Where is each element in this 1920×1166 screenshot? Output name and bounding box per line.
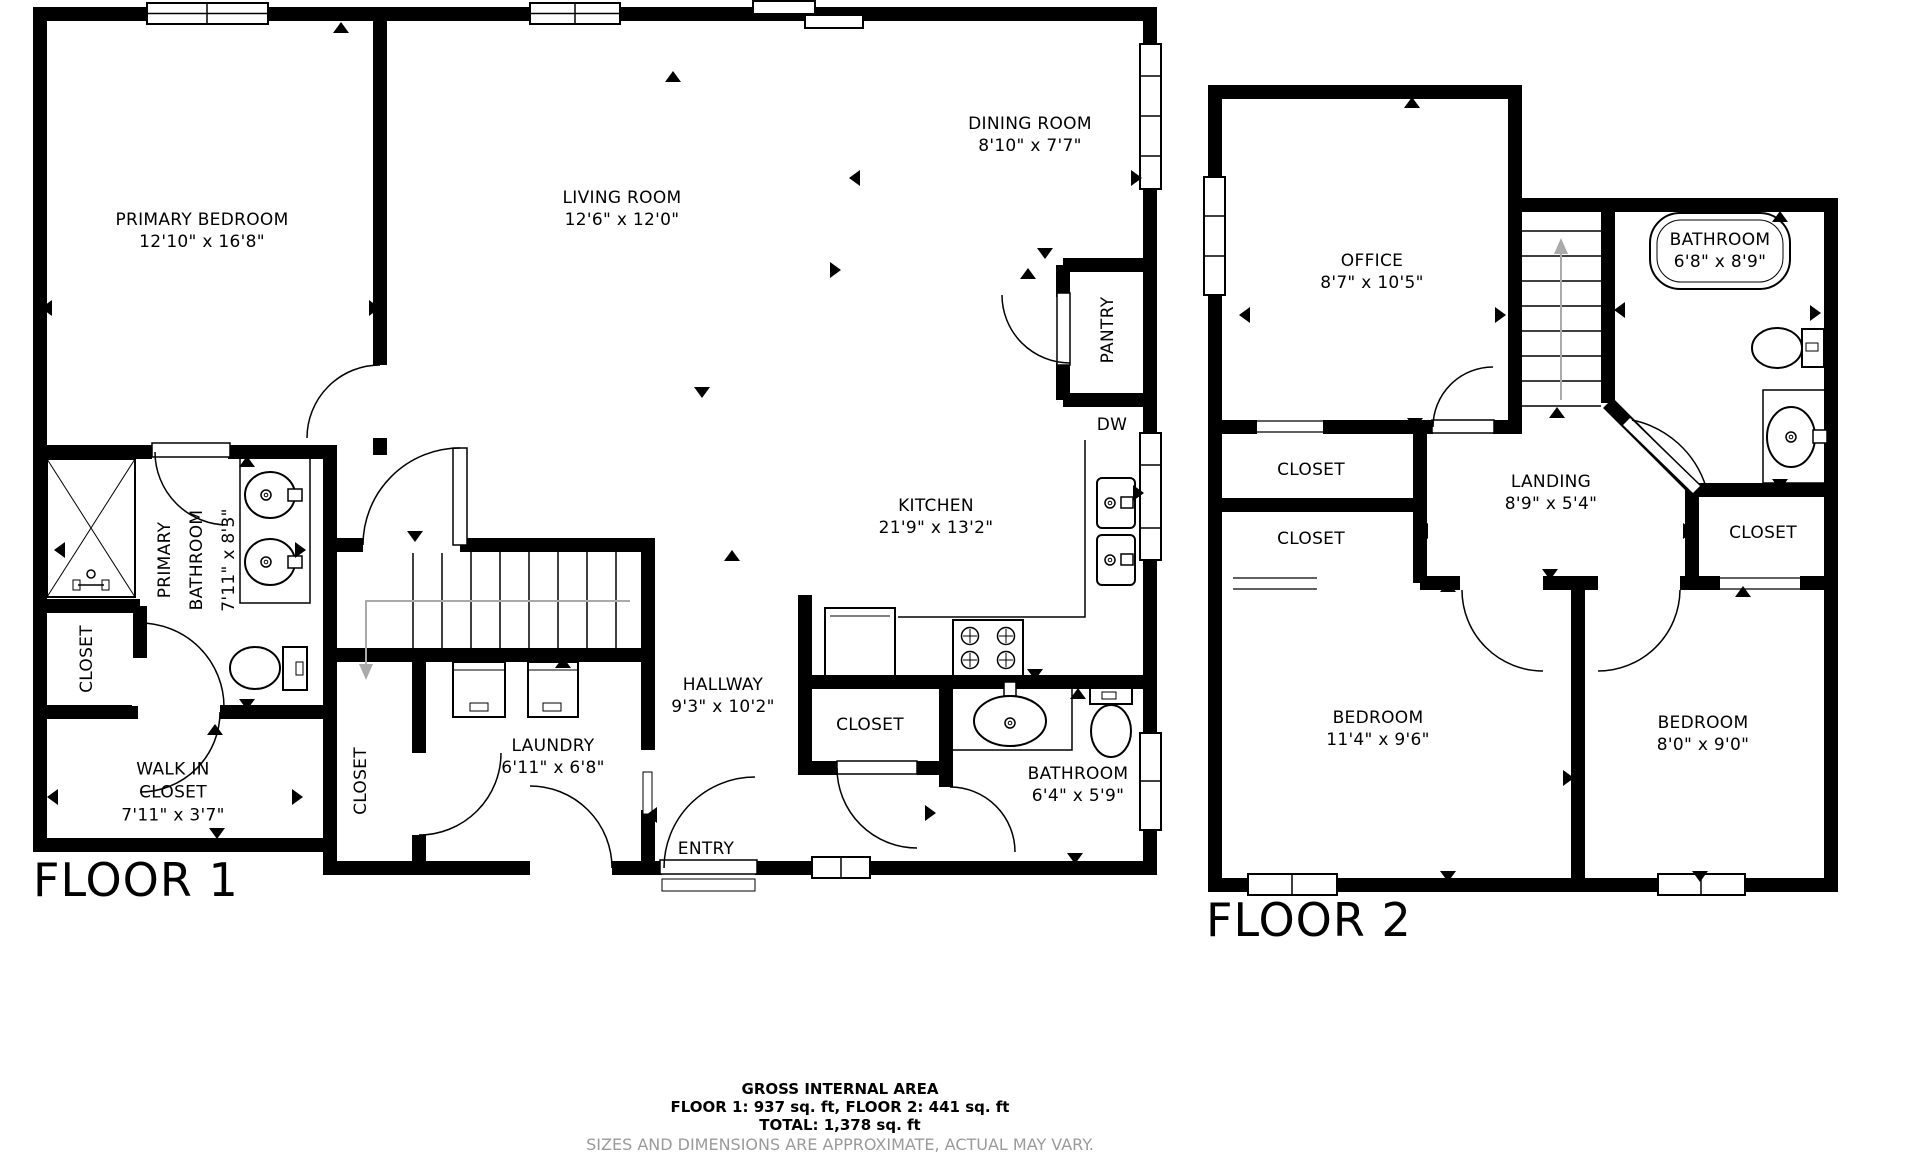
room-dims: 6'8" x 8'9" xyxy=(1670,251,1771,273)
room-name: KITCHEN xyxy=(879,495,994,517)
area-summary-total: TOTAL: 1,378 sq. ft xyxy=(586,1116,1094,1134)
room-name: CLOSET xyxy=(76,625,98,693)
room-dims: 9'3" x 10'2" xyxy=(671,696,775,718)
room-label-entry: ENTRY xyxy=(678,838,734,860)
floor2-title: FLOOR 2 xyxy=(1206,897,1412,943)
room-label-closet-right: CLOSET xyxy=(1729,522,1797,544)
room-name: PANTRY xyxy=(1097,297,1119,364)
room-name: CLOSET xyxy=(1277,459,1345,481)
room-dims: 6'4" x 5'9" xyxy=(1028,785,1129,807)
room-name: ENTRY xyxy=(678,838,734,860)
room-name: CLOSET xyxy=(121,782,225,805)
room-label-closet-bottom: CLOSET xyxy=(1277,528,1345,550)
room-dims: 6'11" x 6'8" xyxy=(501,757,605,779)
room-label-closet-top: CLOSET xyxy=(1277,459,1345,481)
room-label-landing: LANDING 8'9" x 5'4" xyxy=(1505,471,1597,515)
room-name: BEDROOM xyxy=(1657,712,1749,734)
floor-plan-graphic xyxy=(0,0,1920,1166)
room-name: PRIMARY xyxy=(149,508,181,612)
room-name: BATHROOM xyxy=(181,508,213,612)
room-label-hallway: HALLWAY 9'3" x 10'2" xyxy=(671,674,775,718)
room-label-primary-bathroom: PRIMARY BATHROOM 7'11" x 8'3" xyxy=(149,508,245,612)
area-summary-title: GROSS INTERNAL AREA xyxy=(586,1080,1094,1098)
room-dims: 12'10" x 16'8" xyxy=(115,231,288,253)
room-name: HALLWAY xyxy=(671,674,775,696)
room-name: LIVING ROOM xyxy=(563,187,682,209)
room-name: BEDROOM xyxy=(1326,707,1430,729)
window-office-left xyxy=(1204,177,1225,295)
room-dims: 8'10" x 7'7" xyxy=(968,135,1092,157)
room-name: BATHROOM xyxy=(1670,229,1771,251)
room-label-walk-in-closet: WALK IN CLOSET 7'11" x 3'7" xyxy=(121,759,225,828)
window-primary-bedroom xyxy=(147,3,268,24)
room-name: LANDING xyxy=(1505,471,1597,493)
room-name: WALK IN xyxy=(121,759,225,782)
window-dining-right xyxy=(1140,44,1161,189)
window-bedroom-left xyxy=(1248,874,1337,895)
pocket-door-laundry xyxy=(643,772,652,814)
area-summary: GROSS INTERNAL AREA FLOOR 1: 937 sq. ft,… xyxy=(586,1080,1094,1154)
room-dims: 7'11" x 3'7" xyxy=(121,805,225,828)
room-dims: 12'6" x 12'0" xyxy=(563,209,682,231)
room-name: CLOSET xyxy=(836,714,904,736)
room-label-kitchen: KITCHEN 21'9" x 13'2" xyxy=(879,495,994,539)
room-dims: 11'4" x 9'6" xyxy=(1326,729,1430,751)
room-name: CLOSET xyxy=(350,747,372,815)
room-label-pantry: PANTRY xyxy=(1097,297,1119,364)
window-kitchen-right xyxy=(1140,433,1161,560)
room-label-office: OFFICE 8'7" x 10'5" xyxy=(1320,250,1424,294)
room-label-living-room: LIVING ROOM 12'6" x 12'0" xyxy=(563,187,682,231)
area-disclaimer: SIZES AND DIMENSIONS ARE APPROXIMATE, AC… xyxy=(586,1136,1094,1154)
room-label-bathroom2: BATHROOM 6'8" x 8'9" xyxy=(1670,229,1771,273)
room-label-primary-bedroom: PRIMARY BEDROOM 12'10" x 16'8" xyxy=(115,209,288,253)
room-dims: 21'9" x 13'2" xyxy=(879,517,994,539)
room-label-closet-mid: CLOSET xyxy=(350,747,372,815)
area-summary-floors: FLOOR 1: 937 sq. ft, FLOOR 2: 441 sq. ft xyxy=(586,1098,1094,1116)
room-label-bedroom-right: BEDROOM 8'0" x 9'0" xyxy=(1657,712,1749,756)
floorplan-canvas: PRIMARY BEDROOM 12'10" x 16'8" LIVING RO… xyxy=(0,0,1920,1166)
room-name: BATHROOM xyxy=(1028,763,1129,785)
room-name: OFFICE xyxy=(1320,250,1424,272)
room-name: LAUNDRY xyxy=(501,735,605,757)
room-dims: 8'7" x 10'5" xyxy=(1320,272,1424,294)
entry-porch xyxy=(662,879,755,891)
label-dishwasher: DW xyxy=(1097,414,1128,436)
room-name: PRIMARY BEDROOM xyxy=(115,209,288,231)
room-label-bathroom1: BATHROOM 6'4" x 5'9" xyxy=(1028,763,1129,807)
floor1-title: FLOOR 1 xyxy=(33,857,239,903)
room-name: CLOSET xyxy=(1729,522,1797,544)
room-dims: 7'11" x 8'3" xyxy=(213,508,245,612)
room-name: CLOSET xyxy=(1277,528,1345,550)
room-name: DINING ROOM xyxy=(968,113,1092,135)
window-hall-closet-bottom xyxy=(812,857,870,878)
room-label-closet-left: CLOSET xyxy=(76,625,98,693)
window-living-room xyxy=(530,3,620,24)
room-label-laundry: LAUNDRY 6'11" x 6'8" xyxy=(501,735,605,779)
appliance-label: DW xyxy=(1097,414,1128,436)
room-dims: 8'0" x 9'0" xyxy=(1657,734,1749,756)
window-bathroom-right xyxy=(1140,733,1161,830)
room-label-bedroom-left: BEDROOM 11'4" x 9'6" xyxy=(1326,707,1430,751)
room-label-closet-hall: CLOSET xyxy=(836,714,904,736)
room-label-dining-room: DINING ROOM 8'10" x 7'7" xyxy=(968,113,1092,157)
room-dims: 8'9" x 5'4" xyxy=(1505,493,1597,515)
